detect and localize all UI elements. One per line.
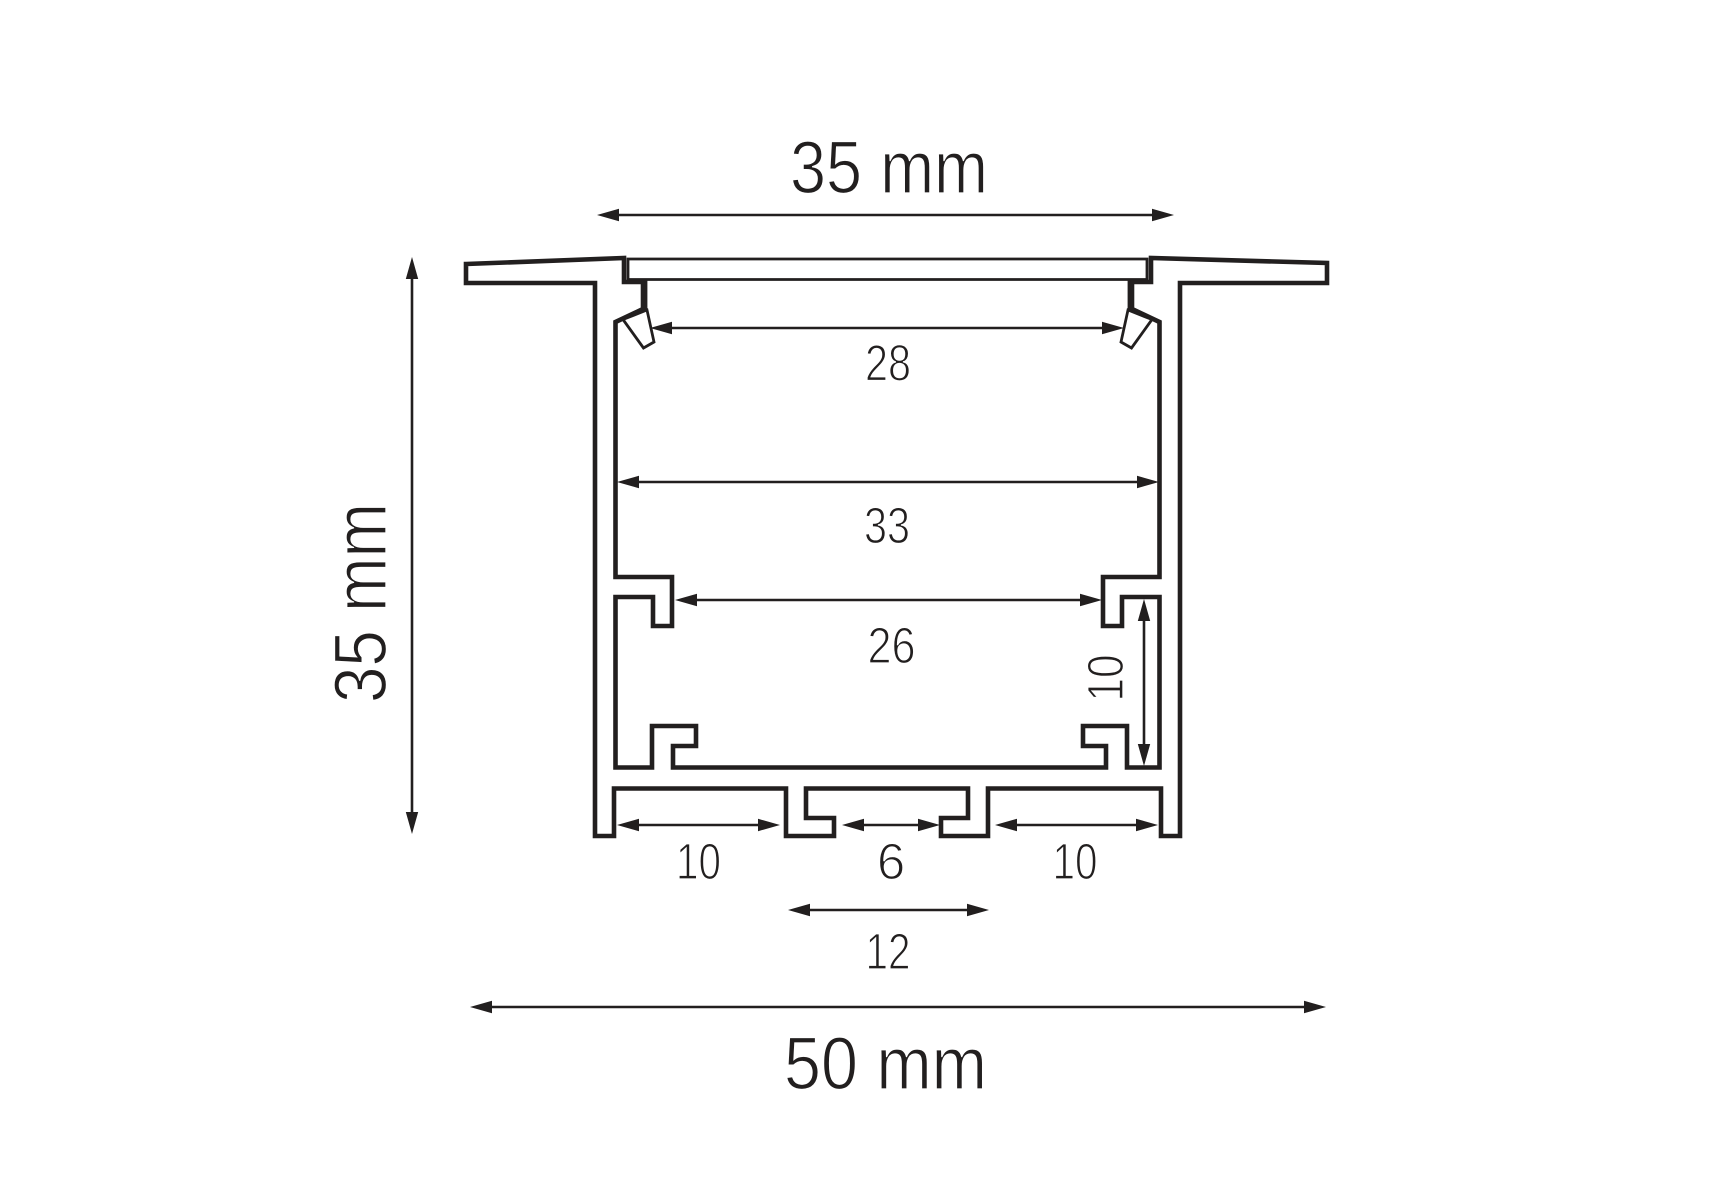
svg-text:50 mm: 50 mm (784, 1022, 987, 1105)
svg-text:28: 28 (865, 335, 911, 392)
svg-text:33: 33 (864, 497, 910, 554)
svg-text:35 mm: 35 mm (790, 126, 988, 209)
svg-text:6: 6 (877, 833, 905, 890)
svg-text:35 mm: 35 mm (319, 503, 402, 703)
svg-text:26: 26 (868, 617, 916, 674)
svg-text:12: 12 (866, 923, 911, 980)
svg-text:10: 10 (676, 833, 721, 890)
svg-text:10: 10 (1077, 655, 1134, 702)
svg-text:10: 10 (1053, 833, 1098, 890)
